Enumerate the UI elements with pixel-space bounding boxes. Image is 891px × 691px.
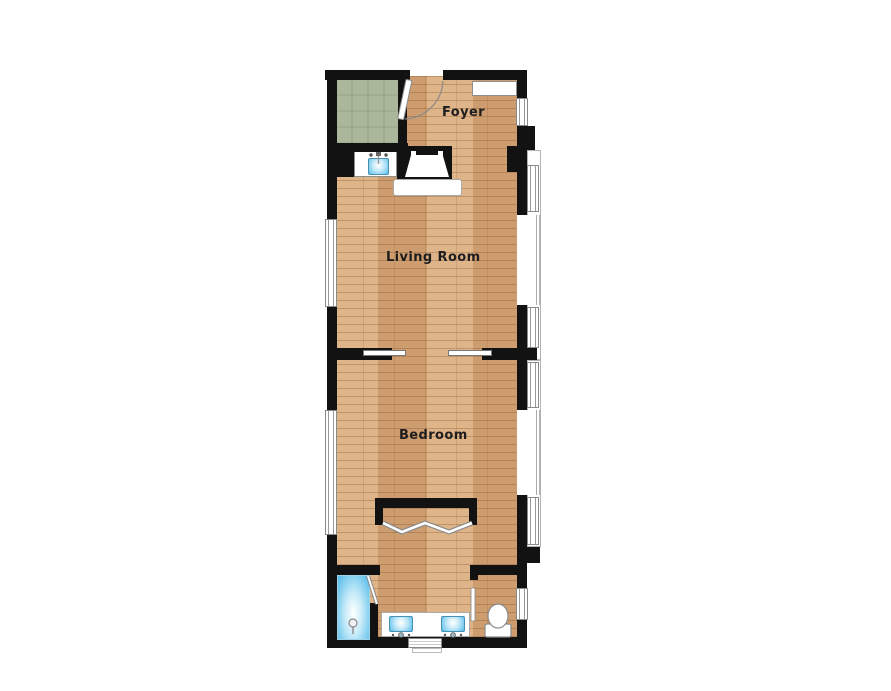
- bay-opening-living: [517, 215, 540, 305]
- wall-step-right-upper: [527, 126, 535, 150]
- window-bath-bottom: [408, 638, 442, 648]
- bay-window-bedroom-top: [527, 362, 539, 408]
- vanity-sink-left: [389, 616, 413, 632]
- wet-bar-sink: [368, 158, 389, 175]
- bay-window-living-top: [527, 165, 539, 212]
- room-label-living-room: Living Room: [386, 250, 481, 265]
- wall-shower-right: [370, 603, 378, 640]
- window-living-left: [325, 219, 337, 307]
- pocket-door-left: [363, 350, 406, 356]
- wall-step-right-lower: [517, 547, 540, 563]
- wall-left: [327, 80, 337, 648]
- wall-closet-right: [469, 498, 477, 525]
- wall-top-left: [325, 70, 410, 80]
- wall-closet-room-right: [398, 80, 407, 143]
- wall-closet-top: [375, 498, 477, 508]
- coat-closet: [472, 81, 517, 96]
- floor-plan-canvas: Foyer Living Room Bedroom: [0, 0, 891, 691]
- bay-window-bedroom-bottom: [527, 497, 539, 545]
- room-label-foyer: Foyer: [442, 105, 485, 120]
- window-sill-bottom: [412, 648, 442, 653]
- room-label-bedroom: Bedroom: [399, 428, 468, 443]
- wall-toilet-partition: [470, 565, 478, 580]
- bay-opening-bedroom: [517, 410, 540, 495]
- pocket-door-right: [448, 350, 492, 356]
- wall-top-right: [443, 70, 527, 80]
- wall-foyer-stub: [507, 146, 517, 172]
- bay-window-living-bottom: [527, 307, 539, 348]
- carpeted-room-floor: [335, 78, 399, 144]
- wall-bath-top-left: [327, 565, 380, 575]
- wall-closet-left: [375, 498, 383, 525]
- vanity-sink-right: [441, 616, 465, 632]
- fireplace-mass: [397, 146, 452, 179]
- window-toilet-right: [516, 588, 528, 620]
- wall-wet-bar-left: [337, 151, 354, 177]
- window-bedroom-left: [325, 410, 337, 535]
- shower: [337, 575, 370, 640]
- window-foyer-right: [516, 98, 528, 126]
- fireplace-hearth: [393, 179, 462, 196]
